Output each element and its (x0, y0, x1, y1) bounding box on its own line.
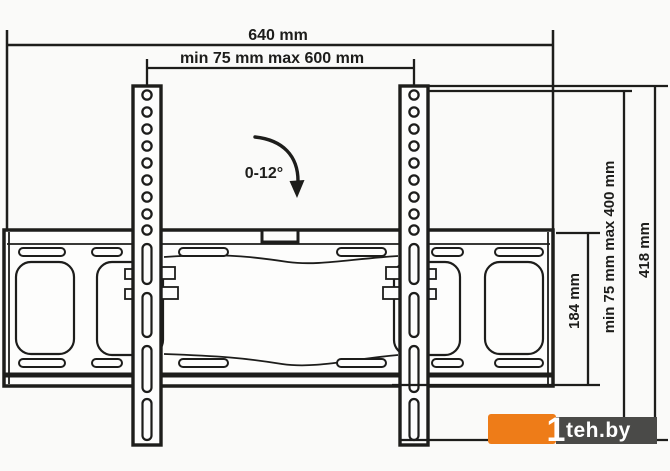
mount-hole (409, 175, 418, 184)
tilt-arrow-icon (290, 180, 305, 198)
vesa-width-label: min 75 mm max 600 mm (180, 50, 364, 67)
rail-slot (143, 244, 152, 284)
watermark-site-label: teh.by (566, 419, 631, 442)
total-width-label: 640 mm (248, 27, 308, 44)
wall-plate (4, 230, 553, 386)
mount-hole (142, 141, 151, 150)
slot (92, 248, 122, 256)
tv-mount-diagram-svg: 640 mm min 75 mm max 600 mm 0-12° (0, 0, 670, 471)
rail-slot (410, 244, 419, 284)
fixing-bolt (383, 287, 400, 299)
mount-hole (409, 158, 418, 167)
slot (337, 359, 386, 367)
slot (19, 359, 65, 367)
mount-hole (409, 141, 418, 150)
rail-holes (142, 90, 151, 234)
tv-mount-dimension-drawing: 640 mm min 75 mm max 600 mm 0-12° (0, 0, 670, 471)
mount-hole (142, 124, 151, 133)
slot (432, 248, 463, 256)
dim-vesa-width: min 75 mm max 600 mm (147, 50, 414, 86)
mount-hole (142, 158, 151, 167)
mount-hole (409, 90, 418, 99)
plate-height-label: 184 mm (566, 273, 583, 329)
mount-hole (142, 175, 151, 184)
mount-hole (142, 90, 151, 99)
mount-hole (142, 192, 151, 201)
rail-slot (143, 293, 152, 337)
slot (19, 248, 65, 256)
fixing-bolt (161, 267, 175, 279)
tilt-annotation: 0-12° (245, 137, 305, 198)
mount-hole (142, 209, 151, 218)
slot (179, 248, 228, 256)
mount-hole (142, 225, 151, 234)
slot (337, 248, 386, 256)
tilt-angle-label: 0-12° (245, 165, 283, 182)
rail-slot (143, 399, 152, 440)
vesa-height-label: min 75 mm max 400 mm (601, 161, 618, 334)
slot (495, 248, 543, 256)
bracket-height-label: 418 mm (636, 222, 653, 278)
fixing-bolt (161, 287, 178, 299)
mount-hole (409, 192, 418, 201)
mount-hole (409, 225, 418, 234)
slot (179, 359, 228, 367)
rail-slot (143, 346, 152, 392)
mount-hole (142, 107, 151, 116)
mount-hole (409, 107, 418, 116)
slot (495, 359, 543, 367)
mount-hole (409, 124, 418, 133)
rail-slot (410, 293, 419, 337)
rail-holes (409, 90, 418, 234)
watermark-digit: 1 (547, 411, 566, 449)
watermark-logo: 1 teh.by (488, 411, 657, 449)
rail-slot (410, 399, 419, 440)
slot (432, 359, 463, 367)
fixing-bolt (386, 267, 400, 279)
center-tab (262, 230, 298, 242)
mount-hole (409, 209, 418, 218)
slot (92, 359, 122, 367)
